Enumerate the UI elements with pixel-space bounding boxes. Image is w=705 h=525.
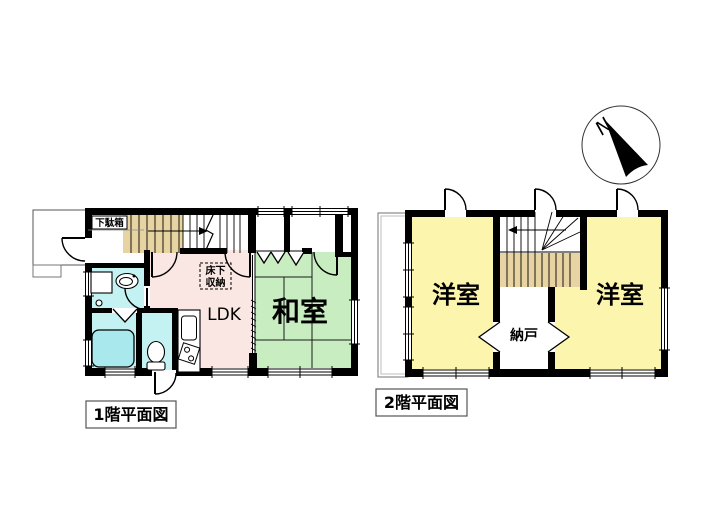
washing-machine-icon [91, 272, 112, 293]
bathtub [92, 330, 134, 367]
toilet-icon [148, 342, 165, 363]
floor1-caption: 1階平面図 [93, 405, 168, 424]
stairs-break-line [205, 213, 214, 252]
nando-label: 納戸 [510, 327, 538, 344]
yoshitsu-right-door [617, 189, 638, 210]
yoshitsu-left-door [445, 189, 466, 210]
entrance-step [33, 265, 61, 277]
ldk-label: LDK [207, 305, 242, 325]
stair-hall-door [535, 189, 556, 210]
floor1-plan: 下駄箱 床下 収納 LDK 和室 [33, 206, 360, 394]
compass: N [582, 106, 660, 184]
washitsu-label: 和室 [272, 295, 328, 328]
yoshitsu-right-label: 洋室 [596, 281, 644, 309]
stairs-2f-lower [500, 253, 580, 287]
yukashita-label-line1: 床下 [206, 264, 226, 277]
stairs-2f-upper [500, 212, 580, 253]
floor2-caption: 2階平面図 [384, 393, 459, 412]
floorplan-drawing: 下駄箱 床下 収納 LDK 和室 [0, 0, 705, 525]
stairs-1f-treads [131, 214, 240, 253]
faucet-icon [133, 275, 136, 278]
getabako-label: 下駄箱 [95, 217, 124, 229]
captions: 1階平面図 2階平面図 [86, 389, 467, 428]
window [258, 206, 284, 217]
yoshitsu-left-label: 洋室 [432, 281, 480, 309]
drain-icon [96, 300, 102, 306]
floor2-plan: 洋室 洋室 納戸 [378, 189, 670, 379]
yukashita-label-line2: 収納 [206, 276, 226, 289]
toilet-door [155, 372, 176, 394]
floorplan-page: 下駄箱 床下 収納 LDK 和室 [0, 0, 705, 525]
balcony [378, 213, 408, 377]
stairs-1f-lower [123, 214, 183, 253]
